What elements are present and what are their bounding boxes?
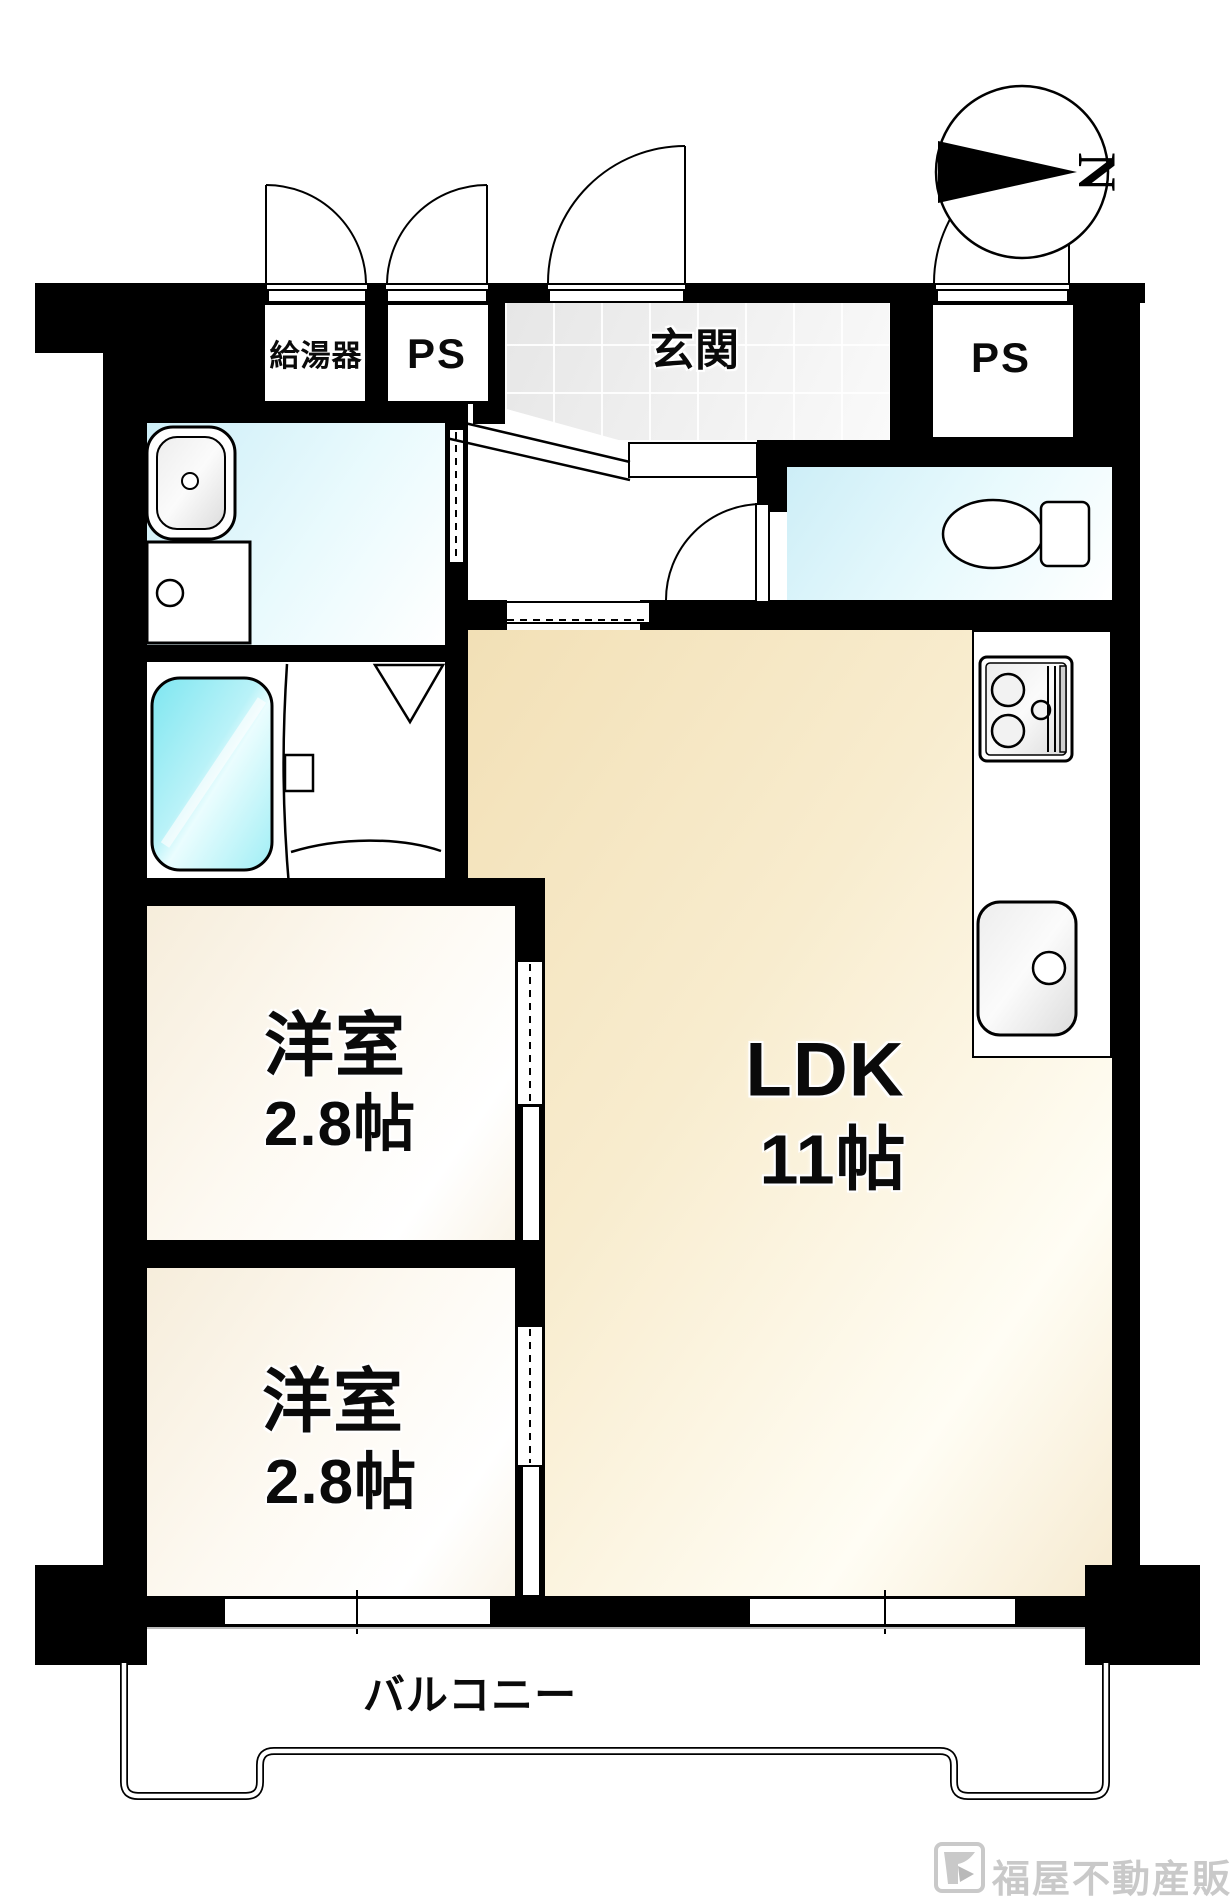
compass-icon: N [936, 86, 1127, 258]
wall-box-gap [368, 302, 385, 404]
wall-service-bottom [103, 404, 468, 423]
door-arc-ps-right [934, 148, 1069, 283]
water-heater-label: 給湯器 [270, 331, 363, 375]
shoe-cabinet [628, 442, 758, 478]
wall-hall-ldk-chunk [467, 600, 507, 630]
door-leaf [936, 289, 1069, 303]
bedroom-upper-door-leaf [521, 1105, 541, 1242]
ps-right-label: PS [971, 334, 1031, 382]
wall-hall-toilet-bottom [640, 600, 1112, 630]
wall-bedroom-divider [103, 1240, 545, 1268]
wall-toilet-left-stub [757, 467, 787, 512]
bedroom-upper-sliding-door [518, 962, 542, 1104]
balcony-railing [124, 1628, 1106, 1796]
bedroom-lower-sliding-door [518, 1327, 542, 1465]
door-leaf [267, 289, 367, 303]
kitchen-counter [972, 630, 1112, 1058]
door-arc-water-heater [266, 185, 366, 283]
balcony-label: バルコニー [363, 1662, 577, 1723]
wall-left [103, 423, 147, 1596]
door-arc-entrance [548, 146, 685, 283]
window-ldk [750, 1599, 1015, 1624]
hall-ldk-door-panel [505, 601, 651, 624]
wall-top-left-stub [35, 283, 103, 353]
ps-left-label: PS [407, 330, 467, 378]
wall-pier-bottom-left [35, 1565, 147, 1665]
entrance-door-leaf [548, 289, 685, 303]
company-logo-icon [936, 1844, 983, 1891]
bedroom-upper-size-label: 2.8帖 [264, 1073, 416, 1163]
room-washroom [147, 423, 445, 645]
floor-plan: N 給湯器 PS 玄関 PS LDK 11帖 洋室 2.8帖 洋室 2.8帖 バ… [0, 0, 1232, 1902]
wall-right [1112, 283, 1140, 1596]
compass-north-label: N [1067, 153, 1127, 192]
door-arc-toilet [666, 504, 769, 602]
bedroom-lower-size-label: 2.8帖 [265, 1431, 417, 1521]
room-bathroom [147, 662, 445, 878]
window-bedroom-lower [225, 1599, 490, 1624]
company-name: 福屋不動産販売 [992, 1848, 1232, 1902]
ldk-size-label: 11帖 [760, 1104, 907, 1205]
wall-washroom-bath [103, 645, 445, 662]
wall-entrance-right [890, 283, 930, 440]
washroom-sliding-door [450, 430, 463, 562]
bedroom-lower-door-leaf [521, 1465, 541, 1597]
room-toilet [787, 467, 1112, 601]
entrance-label: 玄関 [650, 314, 740, 378]
door-leaf [386, 289, 488, 303]
wall-pier-bottom-right [1085, 1565, 1200, 1665]
door-arc-ps-left [387, 185, 487, 283]
wall-bath-bottom [103, 878, 545, 906]
ldk-label: LDK [745, 1027, 904, 1114]
wall-toilet-top [757, 440, 1140, 467]
